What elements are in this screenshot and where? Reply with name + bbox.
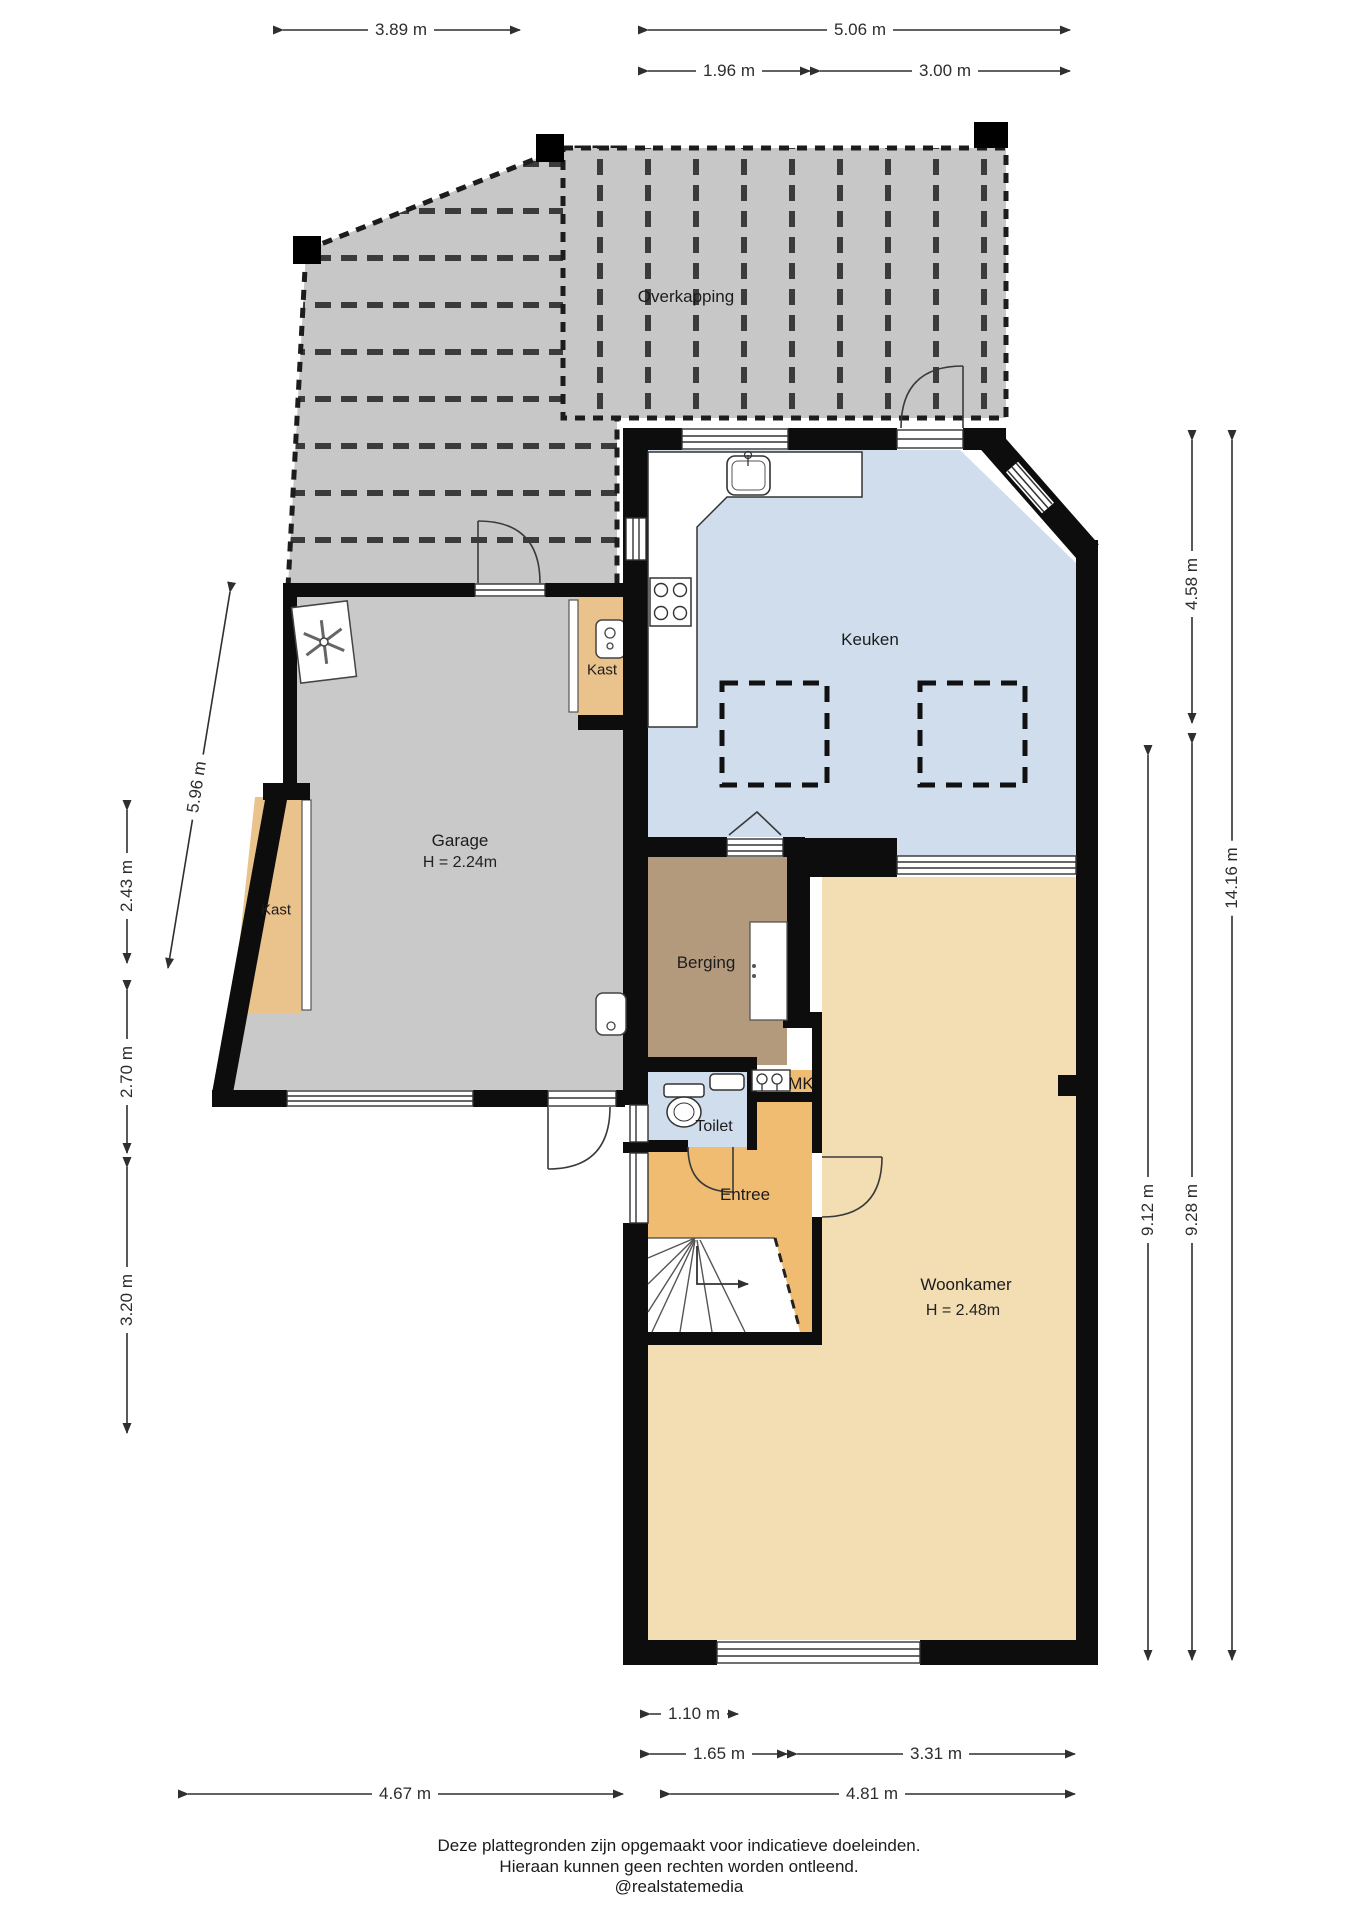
dim-right-1416: 14.16 m [1222, 840, 1242, 915]
fan-unit-icon [292, 601, 357, 683]
door-garage-exterior [548, 1107, 610, 1169]
stove-icon [650, 578, 691, 626]
footer-disclaimer: Deze plattegronden zijn opgemaakt voor i… [0, 1836, 1358, 1898]
garage-label: Garage [432, 831, 489, 851]
dim-top-196: 1.96 m [696, 61, 762, 81]
boiler-icon [596, 620, 625, 658]
footer-line-2: Hieraan kunnen geen rechten worden ontle… [0, 1857, 1358, 1878]
dim-bottom-110: 1.10 m [661, 1704, 727, 1724]
berging-cabinet [750, 922, 787, 1020]
floorplan-page: Overkapping Keuken Kast Garage H = 2.24m… [0, 0, 1358, 1920]
dim-left-243: 2.43 m [117, 853, 137, 919]
entree-label: Entree [720, 1185, 770, 1205]
dim-top-389: 3.89 m [368, 20, 434, 40]
dim-right-912: 9.12 m [1138, 1177, 1158, 1243]
kast-garage-label: Kast [261, 902, 291, 919]
dim-right-458: 4.58 m [1182, 551, 1202, 617]
footer-line-3: @realstatemedia [0, 1877, 1358, 1898]
kast-keuken-label: Kast [587, 662, 617, 679]
dim-bottom-481: 4.81 m [839, 1784, 905, 1804]
woonkamer-height-label: H = 2.48m [926, 1302, 1000, 1320]
dim-bottom-467: 4.67 m [372, 1784, 438, 1804]
dim-top-300: 3.00 m [912, 61, 978, 81]
dim-bottom-165: 1.65 m [686, 1744, 752, 1764]
stairs [648, 1238, 800, 1332]
woonkamer-label: Woonkamer [920, 1275, 1011, 1295]
dim-bottom-331: 3.31 m [903, 1744, 969, 1764]
cistern-icon [664, 1084, 704, 1097]
dim-top-506: 5.06 m [827, 20, 893, 40]
hand-basin-icon [710, 1074, 744, 1090]
keuken-label: Keuken [841, 630, 899, 650]
boiler-garage-icon [596, 993, 626, 1035]
berging-label: Berging [677, 953, 736, 973]
dim-left-320: 3.20 m [117, 1267, 137, 1333]
sink-icon [727, 452, 770, 496]
dim-left-270: 2.70 m [117, 1039, 137, 1105]
footer-line-1: Deze plattegronden zijn opgemaakt voor i… [0, 1836, 1358, 1857]
overkapping-label: Overkapping [638, 287, 734, 307]
toilet-label: Toilet [695, 1118, 732, 1136]
meter-cabinet-icon [752, 1070, 790, 1091]
kast-keuken-area [569, 597, 625, 715]
garage-height-label: H = 2.24m [423, 854, 497, 872]
dim-right-928: 9.28 m [1182, 1177, 1202, 1243]
mk-label: MK [788, 1074, 814, 1094]
